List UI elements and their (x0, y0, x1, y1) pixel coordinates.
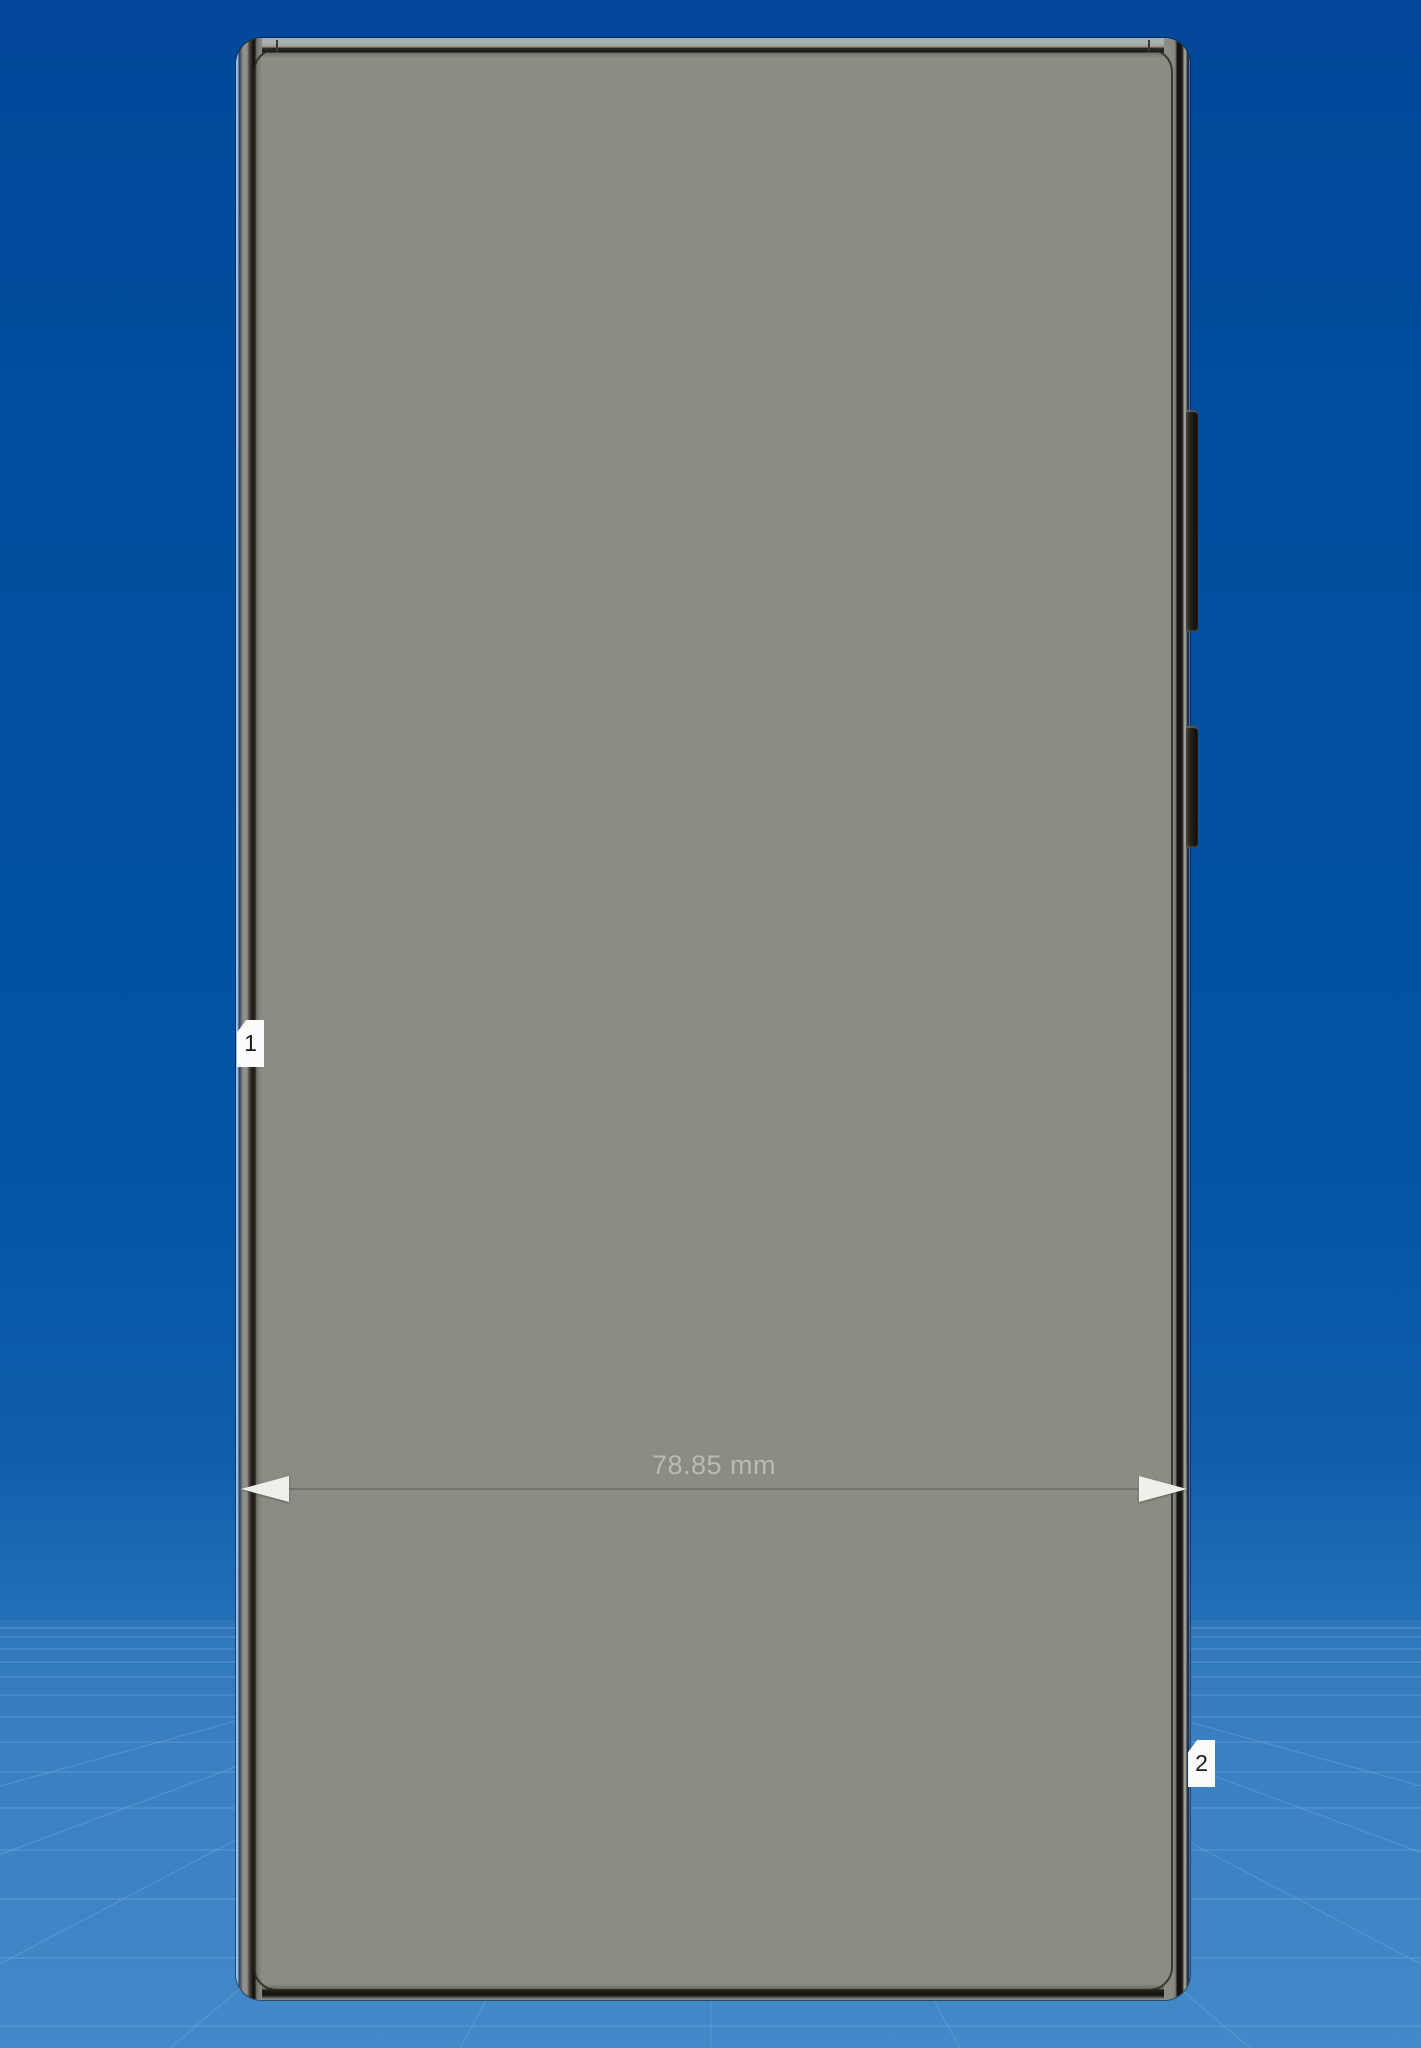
antenna-seam-right (1148, 40, 1150, 52)
marker-tag-2[interactable]: 2 (1188, 1740, 1215, 1787)
phone-screen-face[interactable] (253, 48, 1173, 1991)
dimension-arrow-left-icon (241, 1476, 289, 1502)
phone-model-body[interactable] (236, 38, 1190, 2000)
antenna-seam-left (276, 40, 278, 52)
dimension-arrow-right-icon (1139, 1476, 1187, 1502)
dimension-line (286, 1488, 1138, 1490)
marker-tag-1[interactable]: 1 (237, 1020, 264, 1067)
cad-viewport[interactable]: 78.85 mm 1 2 (0, 0, 1421, 2048)
dimension-value-label: 78.85 mm (564, 1450, 864, 1481)
power-button-model[interactable] (1186, 726, 1198, 848)
volume-rocker-model[interactable] (1186, 410, 1198, 632)
